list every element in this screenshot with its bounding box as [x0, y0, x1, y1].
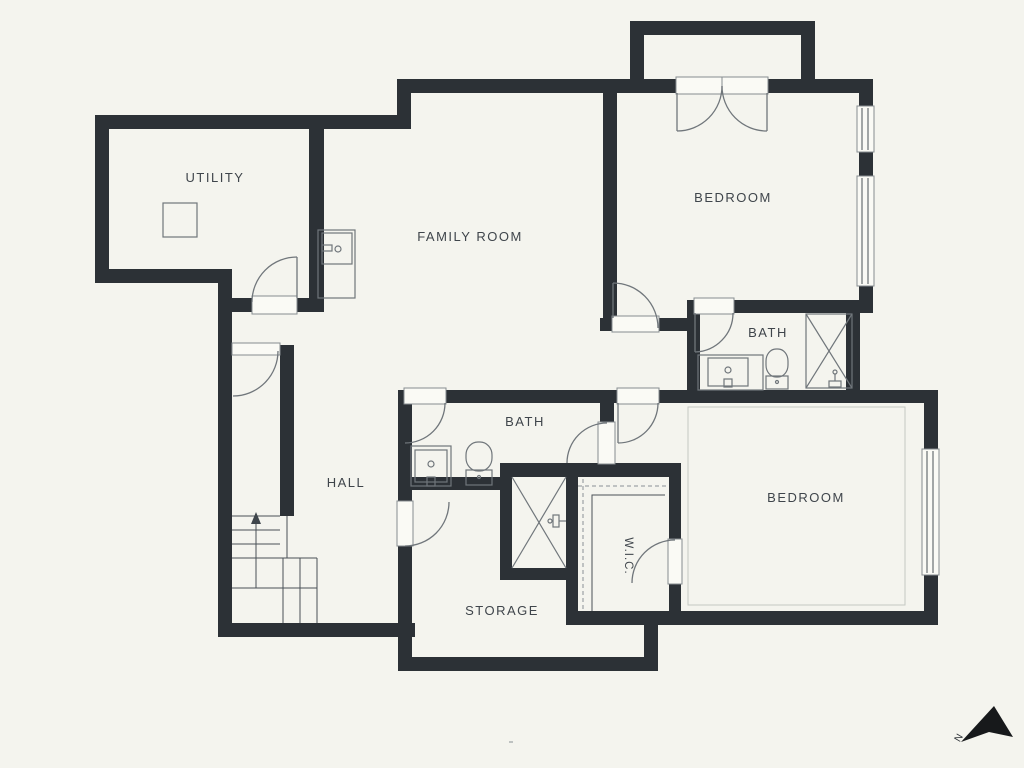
north-letter: N	[953, 732, 966, 744]
bath1-door-threshold	[694, 298, 734, 314]
window-bedroom1-small	[857, 106, 874, 152]
wall-wic-top	[566, 463, 681, 477]
window-bedroom1-large	[857, 176, 874, 286]
watermark-dot	[509, 741, 513, 743]
bedroom2-door	[618, 403, 658, 443]
wall-utility-bottom-left	[95, 269, 232, 283]
wall-shower-left	[500, 463, 512, 580]
wall-bottom-south	[566, 611, 938, 625]
wall-utility-left	[95, 115, 109, 283]
bath2-door-threshold	[404, 388, 446, 404]
walls	[95, 21, 938, 671]
wall-storage-right	[644, 611, 658, 671]
label-family-room: FAMILY ROOM	[417, 229, 523, 244]
bath1-toilet	[766, 349, 788, 389]
label-bedroom-lower: BEDROOM	[767, 490, 845, 505]
label-bath-top: BATH	[748, 325, 788, 340]
stairs-door-threshold	[232, 343, 280, 355]
wall-left-exterior	[218, 269, 232, 637]
bedroom1-door-threshold	[612, 316, 659, 332]
window-bedroom2	[922, 449, 939, 575]
shower-mid	[512, 477, 566, 568]
utility-door-threshold	[252, 296, 297, 314]
label-utility: UTILITY	[186, 170, 245, 185]
wall-bump-top	[630, 21, 815, 35]
staircase	[232, 512, 317, 623]
bath1-vanity-sink	[698, 355, 763, 390]
utility-appliance	[163, 203, 197, 237]
french-door-right-threshold	[722, 77, 768, 94]
shower-head-icon	[548, 515, 566, 527]
north-arrow: N	[953, 706, 1013, 744]
storage-door-threshold	[397, 501, 413, 546]
wall-bump-right	[801, 21, 815, 93]
windows	[857, 106, 939, 575]
shower-head-icon	[829, 370, 841, 387]
wall-hall-bottom	[218, 623, 415, 637]
stairs-up-arrow	[251, 512, 310, 588]
wall-utility-right	[309, 115, 324, 312]
floor-plan-canvas: UTILITY FAMILY ROOM BEDROOM BATH BATH HA…	[0, 0, 1024, 768]
wall-long-horizontal	[398, 390, 938, 403]
label-hall: HALL	[327, 475, 366, 490]
north-arrow-icon	[961, 706, 1013, 742]
label-wic: W.I.C.	[622, 537, 634, 574]
bath1-door	[695, 313, 733, 352]
wall-stair-right	[280, 345, 294, 516]
bath2-side-door-threshold	[598, 422, 615, 464]
wall-storage-bottom	[398, 657, 658, 671]
wall-utility-top	[95, 115, 411, 129]
label-storage: STORAGE	[465, 603, 539, 618]
french-door-left-threshold	[676, 77, 722, 94]
label-bath-mid: BATH	[505, 414, 545, 429]
utility-door	[252, 257, 297, 302]
wall-bedroom1-left	[603, 93, 617, 331]
wic-door-threshold	[668, 539, 682, 584]
shower-top-bath	[806, 314, 852, 388]
bedroom2-floor-outline	[688, 407, 905, 605]
stairs-door	[233, 351, 278, 396]
label-bedroom-top: BEDROOM	[694, 190, 772, 205]
wall-wic-left	[566, 463, 578, 623]
floor-plan: UTILITY FAMILY ROOM BEDROOM BATH BATH HA…	[0, 0, 1024, 768]
bedroom2-door-threshold	[617, 388, 659, 404]
